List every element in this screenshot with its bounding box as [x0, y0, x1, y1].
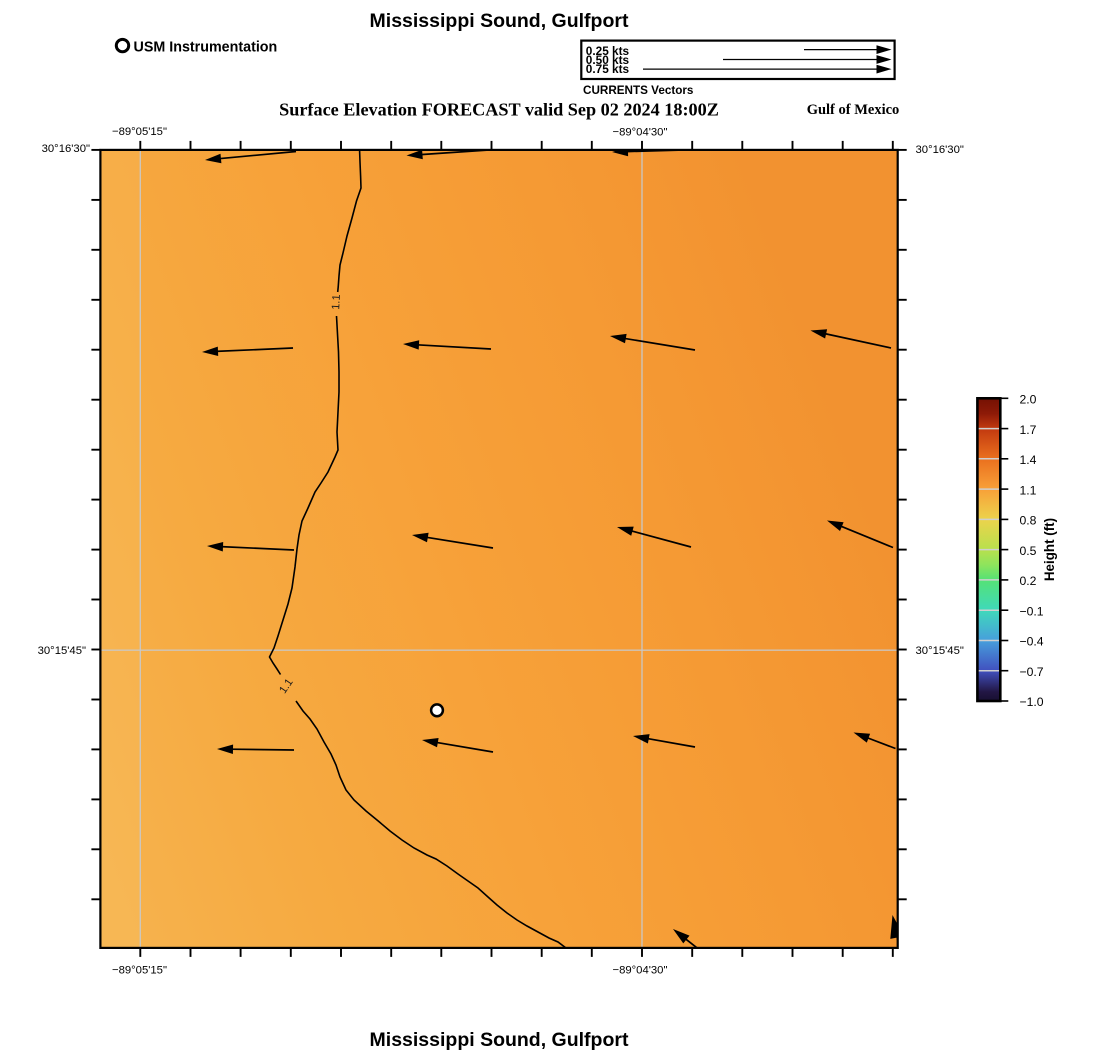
svg-text:30°15'45": 30°15'45": [916, 645, 964, 657]
svg-text:Height (ft): Height (ft): [1042, 518, 1057, 581]
svg-text:1.1: 1.1: [1020, 483, 1037, 497]
svg-text:−0.1: −0.1: [1020, 604, 1044, 618]
svg-text:0.2: 0.2: [1020, 574, 1037, 588]
svg-text:30°16'30": 30°16'30": [916, 144, 964, 156]
svg-text:30°15'45": 30°15'45": [38, 645, 86, 657]
svg-text:−1.0: −1.0: [1020, 695, 1044, 709]
svg-text:USM Instrumentation: USM Instrumentation: [134, 39, 278, 55]
svg-text:Surface Elevation FORECAST val: Surface Elevation FORECAST valid Sep 02 …: [279, 100, 719, 120]
svg-text:0.5: 0.5: [1020, 544, 1037, 558]
svg-text:−89°05'15": −89°05'15": [112, 965, 167, 977]
svg-text:−89°04'30": −89°04'30": [613, 965, 668, 977]
svg-text:30°16'30": 30°16'30": [42, 143, 90, 155]
svg-text:0.75 kts: 0.75 kts: [586, 62, 630, 76]
svg-text:Mississippi Sound, Gulfport: Mississippi Sound, Gulfport: [370, 10, 629, 32]
svg-text:−89°05'15": −89°05'15": [112, 126, 167, 138]
svg-text:Mississippi Sound, Gulfport: Mississippi Sound, Gulfport: [370, 1029, 629, 1050]
svg-text:−0.4: −0.4: [1020, 635, 1044, 649]
svg-text:Gulf of Mexico: Gulf of Mexico: [807, 102, 900, 118]
svg-text:2.0: 2.0: [1020, 393, 1037, 407]
svg-text:−89°04'30": −89°04'30": [613, 126, 668, 138]
svg-text:0.8: 0.8: [1020, 514, 1037, 528]
svg-text:CURRENTS Vectors: CURRENTS Vectors: [583, 84, 694, 97]
svg-text:1.7: 1.7: [1020, 423, 1037, 437]
svg-text:−0.7: −0.7: [1020, 665, 1044, 679]
svg-text:1.4: 1.4: [1020, 453, 1037, 467]
svg-text:1.1: 1.1: [330, 294, 343, 310]
